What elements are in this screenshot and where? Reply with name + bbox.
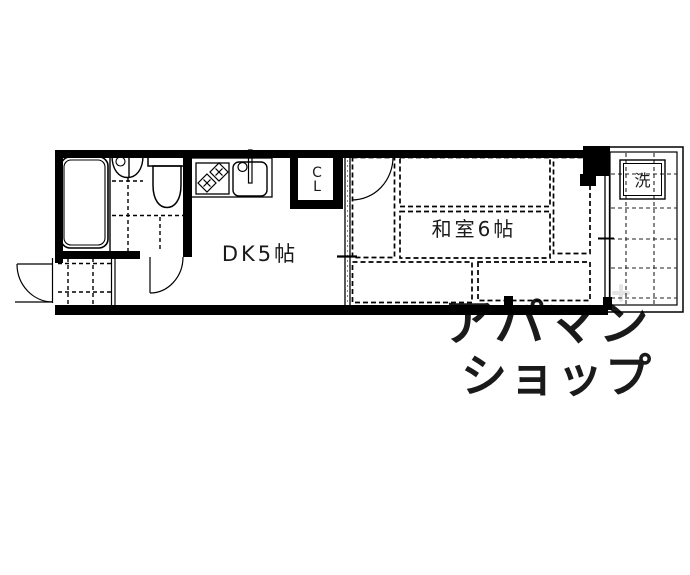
watermark-line1: アパマン — [444, 294, 651, 352]
washitsu-label: 和室6帖 — [432, 217, 517, 241]
balcony: 洗 — [607, 147, 683, 312]
wash-basin — [112, 156, 143, 178]
floorplan-drawing: アパマン ショップ 洗 — [0, 0, 690, 575]
washroom-wall-right — [183, 150, 192, 257]
bathroom — [61, 155, 184, 251]
wall-bottom — [55, 305, 608, 315]
floorplan: アパマン ショップ 洗 — [0, 0, 690, 575]
closet-label-l: L — [313, 179, 321, 195]
washitsu-door-swing — [352, 157, 393, 200]
entrance-door — [15, 258, 53, 303]
bathroom-floor-grid — [112, 178, 183, 251]
wall-left — [55, 150, 63, 263]
closet-wall-bottom — [290, 200, 343, 209]
wall-top — [55, 150, 608, 158]
dk-label: DK5帖 — [222, 242, 298, 266]
tatami-mat — [400, 158, 550, 207]
window-sliding-door — [598, 176, 614, 298]
washroom-wall-bottom — [55, 251, 140, 259]
laundry-machine-area: 洗 — [620, 160, 665, 199]
watermark-line2: ショップ — [461, 349, 653, 403]
pillar-step — [580, 174, 596, 186]
tatami-mat — [353, 158, 395, 258]
pillar-nub — [504, 296, 513, 307]
pillar — [583, 146, 610, 176]
bathtub — [61, 157, 108, 248]
stove-burner-icon — [198, 163, 228, 192]
laundry-label: 洗 — [634, 171, 650, 190]
watermark: アパマン ショップ — [444, 286, 654, 403]
corner-block — [603, 297, 612, 310]
toilet — [148, 155, 184, 208]
washroom-door — [150, 257, 183, 293]
genkan-floor — [58, 257, 115, 305]
